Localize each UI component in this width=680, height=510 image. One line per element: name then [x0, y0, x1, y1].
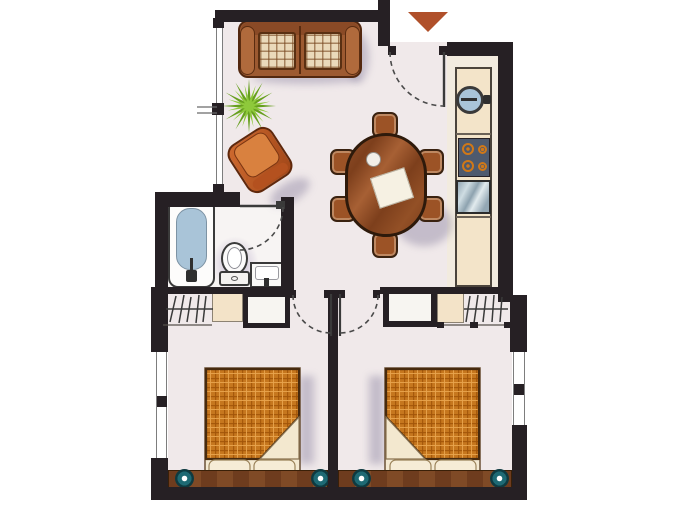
track-tick-1 [437, 322, 444, 328]
track-tick-2 [470, 322, 478, 328]
floor-plan [0, 0, 680, 510]
bathroom-door-swing [240, 207, 283, 250]
bedroom-left-door-swing [293, 295, 331, 333]
bedroom-right-door-swing [340, 295, 378, 333]
bedroom-right-jamb-2 [373, 290, 380, 298]
entrance-marker-triangle [408, 12, 448, 32]
entrance-jamb-left [388, 46, 396, 55]
line-overlay [0, 0, 680, 510]
track-tick-3 [504, 322, 511, 328]
entrance-door-swing [390, 52, 444, 106]
